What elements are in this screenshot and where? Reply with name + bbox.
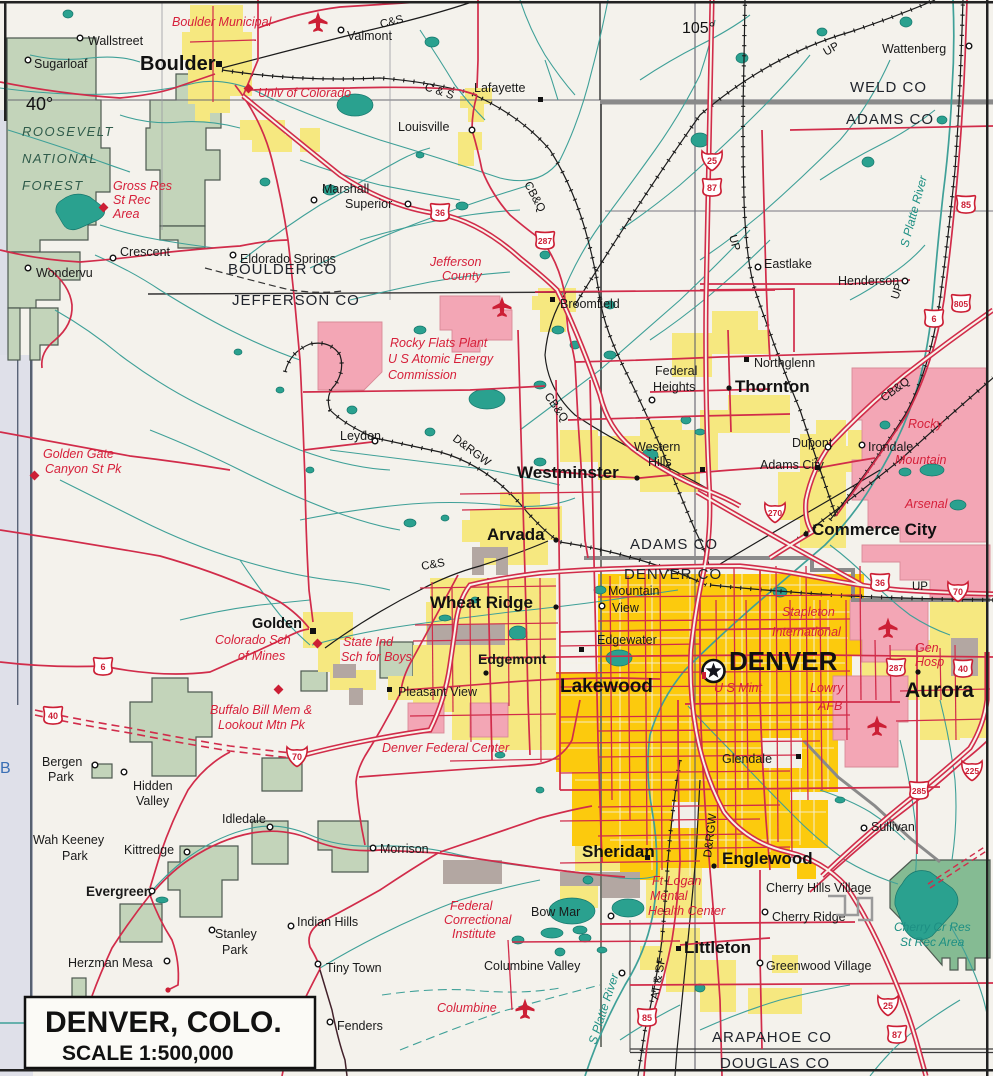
svg-text:36: 36	[435, 208, 445, 218]
svg-text:Greenwood Village: Greenwood Village	[766, 959, 871, 973]
svg-text:Rocky Flats Plant: Rocky Flats Plant	[390, 336, 488, 350]
svg-text:Fenders: Fenders	[337, 1019, 383, 1033]
svg-text:287: 287	[538, 236, 552, 246]
svg-text:Littleton: Littleton	[684, 938, 751, 957]
svg-text:Gen: Gen	[915, 641, 939, 655]
svg-text:Correctional: Correctional	[444, 913, 513, 927]
svg-text:Jefferson: Jefferson	[429, 255, 481, 269]
svg-text:Sullivan: Sullivan	[871, 820, 915, 834]
svg-text:285: 285	[912, 786, 926, 796]
svg-text:85: 85	[961, 200, 971, 210]
svg-text:85: 85	[642, 1013, 652, 1023]
svg-text:Canyon St Pk: Canyon St Pk	[45, 462, 122, 476]
svg-text:DENVER, COLO.: DENVER, COLO.	[45, 1006, 282, 1039]
svg-text:Ft Logan: Ft Logan	[652, 874, 701, 888]
svg-text:Federal: Federal	[450, 899, 494, 913]
svg-text:70: 70	[292, 752, 302, 762]
svg-text:U S Mint: U S Mint	[714, 681, 762, 695]
svg-text:Superior: Superior	[345, 197, 392, 211]
svg-text:ARAPAHOE CO: ARAPAHOE CO	[712, 1029, 832, 1046]
svg-text:805: 805	[954, 299, 968, 309]
svg-text:Adams City: Adams City	[760, 458, 825, 472]
svg-text:87: 87	[707, 183, 717, 193]
svg-text:Wondervu: Wondervu	[36, 266, 93, 280]
svg-text:Commerce City: Commerce City	[812, 520, 937, 539]
svg-text:AFB: AFB	[817, 699, 842, 713]
svg-text:Kittredge: Kittredge	[124, 843, 174, 857]
svg-text:State Ind: State Ind	[343, 635, 394, 649]
svg-text:St Rec Area: St Rec Area	[900, 935, 965, 949]
svg-text:Area: Area	[112, 207, 139, 221]
svg-text:105°: 105°	[682, 20, 715, 37]
svg-text:Stanley: Stanley	[215, 927, 257, 941]
svg-text:NATIONAL: NATIONAL	[22, 151, 98, 166]
svg-text:of Mines: of Mines	[238, 649, 285, 663]
svg-text:Gross Res: Gross Res	[113, 179, 172, 193]
svg-text:Lakewood: Lakewood	[560, 676, 653, 697]
svg-text:SCALE 1:500,000: SCALE 1:500,000	[62, 1042, 234, 1065]
svg-text:Boulder Municipal: Boulder Municipal	[172, 15, 273, 29]
svg-text:Institute: Institute	[452, 927, 496, 941]
svg-text:Park: Park	[48, 770, 74, 784]
svg-text:Heights: Heights	[653, 380, 695, 394]
svg-text:Stapleton: Stapleton	[782, 605, 835, 619]
svg-text:Hidden: Hidden	[133, 779, 173, 793]
svg-text:Thornton: Thornton	[735, 377, 810, 396]
svg-text:Denver Federal Center: Denver Federal Center	[382, 741, 510, 755]
svg-text:Aurora: Aurora	[905, 679, 974, 702]
svg-text:Eastlake: Eastlake	[764, 257, 812, 271]
svg-text:Colorado Sch: Colorado Sch	[215, 633, 291, 647]
svg-text:Irondale: Irondale	[868, 440, 913, 454]
svg-text:Lafayette: Lafayette	[474, 81, 525, 95]
svg-text:Evergreen: Evergreen	[86, 884, 152, 899]
svg-text:U S Atomic Energy: U S Atomic Energy	[388, 352, 494, 366]
svg-text:Marshall: Marshall	[322, 182, 369, 196]
svg-text:DENVER: DENVER	[729, 646, 838, 676]
svg-text:Bergen: Bergen	[42, 755, 82, 769]
svg-text:Sugarloaf: Sugarloaf	[34, 57, 88, 71]
svg-text:Univ of Colorado: Univ of Colorado	[258, 86, 351, 100]
svg-text:Western: Western	[634, 440, 680, 454]
svg-text:Rocky: Rocky	[908, 417, 943, 431]
svg-text:County: County	[442, 269, 482, 283]
svg-text:Lookout Mtn Pk: Lookout Mtn Pk	[218, 718, 306, 732]
svg-text:B: B	[0, 760, 11, 777]
svg-text:6: 6	[100, 662, 105, 672]
svg-text:Glendale: Glendale	[722, 752, 772, 766]
svg-text:Golden: Golden	[252, 616, 302, 632]
svg-text:225: 225	[965, 766, 979, 776]
svg-text:International: International	[772, 625, 842, 639]
svg-text:Hills: Hills	[648, 455, 672, 469]
svg-text:40: 40	[48, 711, 58, 721]
svg-text:Edgemont: Edgemont	[478, 651, 547, 667]
svg-text:Sch for Boys: Sch for Boys	[341, 650, 412, 664]
svg-text:Hosp: Hosp	[915, 655, 944, 669]
svg-text:FOREST: FOREST	[22, 178, 84, 193]
svg-text:Park: Park	[62, 849, 88, 863]
svg-text:Edgewater: Edgewater	[597, 633, 657, 647]
svg-text:Health Center: Health Center	[648, 904, 726, 918]
svg-text:Pleasant View: Pleasant View	[398, 685, 478, 699]
svg-text:Golden Gate: Golden Gate	[43, 447, 114, 461]
svg-text:40: 40	[958, 664, 968, 674]
svg-text:Bow Mar: Bow Mar	[531, 905, 580, 919]
svg-text:87: 87	[892, 1030, 902, 1040]
svg-text:Cherry Ridge: Cherry Ridge	[772, 910, 846, 924]
svg-text:Wheat Ridge: Wheat Ridge	[430, 593, 533, 612]
svg-text:Northglenn: Northglenn	[754, 356, 815, 370]
svg-text:Federal: Federal	[655, 364, 697, 378]
svg-text:ADAMS CO: ADAMS CO	[630, 536, 718, 553]
svg-text:Mental: Mental	[650, 889, 689, 903]
svg-text:Lowry: Lowry	[810, 681, 844, 695]
svg-text:25: 25	[883, 1001, 893, 1011]
svg-text:Valley: Valley	[136, 794, 170, 808]
svg-text:WELD CO: WELD CO	[850, 79, 927, 96]
svg-text:Morrison: Morrison	[380, 842, 429, 856]
svg-text:287: 287	[889, 663, 903, 673]
svg-text:Cherry Hills Village: Cherry Hills Village	[766, 881, 871, 895]
svg-text:70: 70	[953, 587, 963, 597]
svg-text:Cherry Cr Res: Cherry Cr Res	[894, 920, 971, 934]
svg-text:JEFFERSON CO: JEFFERSON CO	[232, 292, 360, 309]
svg-text:Crescent: Crescent	[120, 245, 171, 259]
svg-text:Idledale: Idledale	[222, 812, 266, 826]
svg-text:ROOSEVELT: ROOSEVELT	[22, 124, 114, 139]
svg-text:View: View	[612, 601, 640, 615]
svg-text:BOULDER CO: BOULDER CO	[228, 261, 337, 278]
svg-text:Wallstreet: Wallstreet	[88, 34, 144, 48]
svg-text:Tiny Town: Tiny Town	[326, 961, 382, 975]
svg-text:25: 25	[707, 156, 717, 166]
svg-text:36: 36	[875, 578, 885, 588]
svg-text:DENVER CO: DENVER CO	[624, 566, 722, 583]
svg-text:Columbine Valley: Columbine Valley	[484, 959, 581, 973]
svg-text:Englewood: Englewood	[722, 849, 813, 868]
svg-text:Mountain: Mountain	[895, 453, 946, 467]
svg-text:Sheridan: Sheridan	[582, 842, 655, 861]
svg-text:Park: Park	[222, 943, 248, 957]
svg-text:Commission: Commission	[388, 368, 457, 382]
svg-text:Indian Hills: Indian Hills	[297, 915, 358, 929]
svg-text:Henderson: Henderson	[838, 274, 899, 288]
svg-text:40°: 40°	[26, 94, 53, 114]
svg-text:Columbine: Columbine	[437, 1001, 497, 1015]
svg-text:Wattenberg: Wattenberg	[882, 42, 946, 56]
svg-text:Louisville: Louisville	[398, 120, 449, 134]
svg-text:Broomfield: Broomfield	[560, 297, 620, 311]
svg-text:ADAMS CO: ADAMS CO	[846, 111, 934, 128]
svg-text:Buffalo Bill Mem &: Buffalo Bill Mem &	[210, 703, 312, 717]
svg-text:Wah Keeney: Wah Keeney	[33, 833, 105, 847]
svg-text:Arvada: Arvada	[487, 525, 545, 544]
svg-text:Arsenal: Arsenal	[904, 497, 949, 511]
svg-text:UP: UP	[912, 581, 928, 593]
svg-text:6: 6	[931, 314, 936, 324]
svg-text:Boulder: Boulder	[140, 53, 216, 75]
svg-text:Mountain: Mountain	[608, 584, 659, 598]
svg-text:Herzman Mesa: Herzman Mesa	[68, 956, 153, 970]
svg-text:St Rec: St Rec	[113, 193, 151, 207]
svg-text:Valmont: Valmont	[347, 29, 392, 43]
svg-text:270: 270	[768, 508, 782, 518]
svg-text:Westminster: Westminster	[517, 463, 619, 482]
